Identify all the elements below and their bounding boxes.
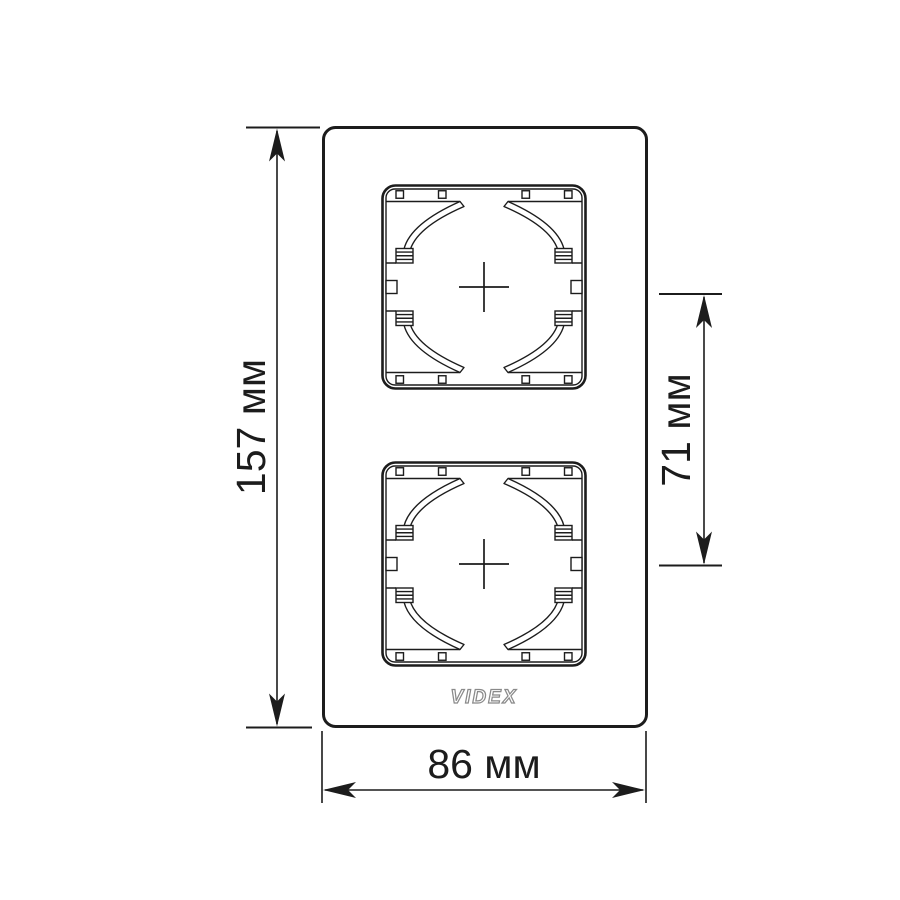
dimension-center-spacing: 71 мм — [653, 294, 722, 566]
dimension-height: 157 мм — [228, 128, 320, 728]
dimension-drawing: VIDEX 157 мм 71 мм 86 м — [0, 0, 900, 900]
height-dimension-label: 157 мм — [228, 359, 274, 495]
spacing-dimension-label: 71 мм — [653, 373, 699, 486]
width-dimension-label: 86 мм — [427, 741, 540, 787]
drawing-svg: VIDEX 157 мм 71 мм 86 м — [0, 0, 900, 900]
brand-logo: VIDEX — [450, 687, 517, 708]
dimension-width: 86 мм — [322, 731, 646, 803]
socket-opening-top — [383, 186, 586, 389]
socket-opening-bottom — [383, 463, 586, 666]
